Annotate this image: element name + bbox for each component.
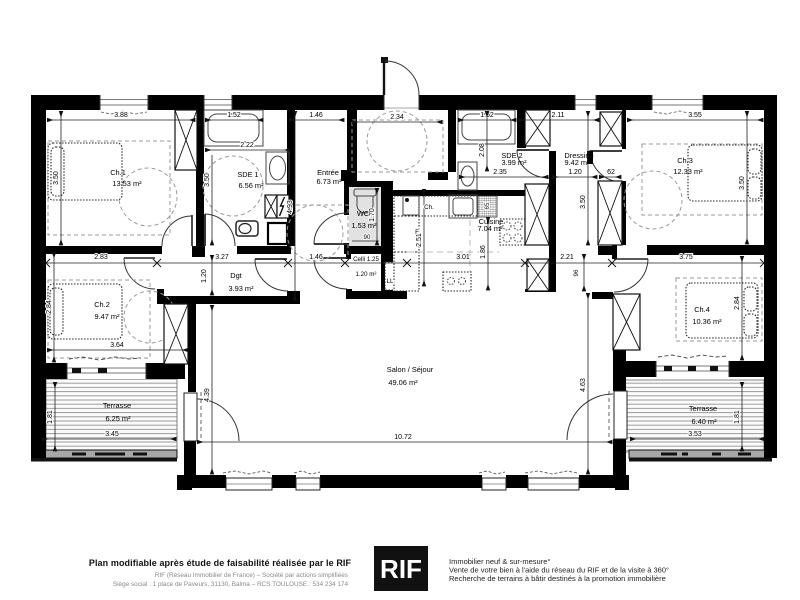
svg-text:4.63: 4.63 [580,378,587,392]
svg-text:13.53 m²: 13.53 m² [112,179,142,188]
svg-text:1.86: 1.86 [480,245,487,259]
svg-text:1.81: 1.81 [47,410,54,424]
svg-text:1.20: 1.20 [568,169,582,176]
svg-text:3.01: 3.01 [456,254,470,261]
svg-text:Dgt: Dgt [230,271,242,280]
svg-text:WC: WC [357,209,370,218]
svg-text:Terrasse: Terrasse [689,404,717,413]
svg-text:Ch.3: Ch.3 [677,156,693,165]
svg-text:3.50: 3.50 [580,195,587,209]
svg-text:1.46: 1.46 [309,254,323,261]
svg-text:2.83: 2.83 [94,254,108,261]
svg-text:1.46: 1.46 [309,112,323,119]
svg-text:2.08: 2.08 [479,143,486,157]
svg-text:49.06 m²: 49.06 m² [388,378,418,387]
svg-text:RIF: RIF [380,554,422,584]
svg-text:3.50: 3.50 [53,171,60,185]
svg-text:3.53: 3.53 [688,431,702,438]
svg-text:Siège social : 1 place de Pave: Siège social : 1 place de Paveurs, 31130… [113,581,349,588]
svg-text:3.50: 3.50 [739,176,746,190]
svg-text:Ch.: Ch. [424,204,434,211]
svg-text:Celli 1.25: Celli 1.25 [353,256,379,263]
svg-text:Ch.2: Ch.2 [94,300,110,309]
svg-text:3.27: 3.27 [215,254,229,261]
svg-text:2.21: 2.21 [560,254,574,261]
svg-text:4.39: 4.39 [204,388,211,402]
svg-text:Recherche de terrains à bâtir: Recherche de terrains à bâtir destinés à… [449,574,666,583]
svg-text:90: 90 [364,234,371,241]
svg-text:1.52: 1.52 [227,112,241,119]
svg-text:2.84: 2.84 [734,296,741,310]
svg-text:9.42 m²: 9.42 m² [564,158,590,167]
svg-text:12.33 m²: 12.33 m² [673,167,703,176]
svg-text:1.81: 1.81 [734,410,741,424]
svg-text:62: 62 [607,169,615,176]
svg-text:3.55: 3.55 [688,112,702,119]
svg-text:RIF (Réseau Immobilier de Fran: RIF (Réseau Immobilier de France) – Soci… [155,572,348,579]
svg-text:3.88: 3.88 [114,112,128,119]
svg-text:Salon / Séjour: Salon / Séjour [387,365,434,374]
svg-text:10.72: 10.72 [394,434,412,441]
svg-text:2.34: 2.34 [390,114,404,121]
svg-text:1.70: 1.70 [369,208,376,222]
svg-text:Ch.1: Ch.1 [110,168,126,177]
svg-text:Entrée: Entrée [317,168,339,177]
svg-text:2.22: 2.22 [240,142,254,149]
svg-text:6.56 m²: 6.56 m² [238,181,264,190]
svg-text:3.50: 3.50 [204,173,211,187]
svg-text:96: 96 [573,269,580,276]
svg-text:Ch.4: Ch.4 [694,305,710,314]
svg-text:6.25 m²: 6.25 m² [105,414,131,423]
svg-text:10.36 m²: 10.36 m² [692,317,722,326]
svg-text:9.47 m²: 9.47 m² [94,312,120,321]
svg-text:F: F [415,229,419,236]
svg-text:7.04 m²: 7.04 m² [477,224,503,233]
svg-text:2.84: 2.84 [46,300,53,314]
svg-text:3.99 m²: 3.99 m² [501,158,527,167]
svg-text:1.20 m²: 1.20 m² [356,271,377,278]
svg-text:6.40 m²: 6.40 m² [691,417,717,426]
svg-text:2.35: 2.35 [493,169,507,176]
svg-text:Terrasse: Terrasse [103,401,131,410]
svg-text:1.20: 1.20 [201,269,208,283]
svg-text:4.93: 4.93 [287,200,294,214]
svg-text:LL: LL [387,278,394,285]
svg-text:3.93 m²: 3.93 m² [228,284,254,293]
svg-text:3.64: 3.64 [110,342,124,349]
svg-text:Plan modifiable après étude de: Plan modifiable après étude de faisabili… [89,558,352,568]
svg-text:6.73 m²: 6.73 m² [316,177,342,186]
svg-text:3.45: 3.45 [105,431,119,438]
svg-text:1.53 m²: 1.53 m² [351,221,377,230]
svg-text:3.75: 3.75 [679,254,693,261]
svg-text:2.11: 2.11 [551,112,564,119]
svg-text:65: 65 [484,202,491,209]
svg-text:SDE 1: SDE 1 [237,170,258,179]
